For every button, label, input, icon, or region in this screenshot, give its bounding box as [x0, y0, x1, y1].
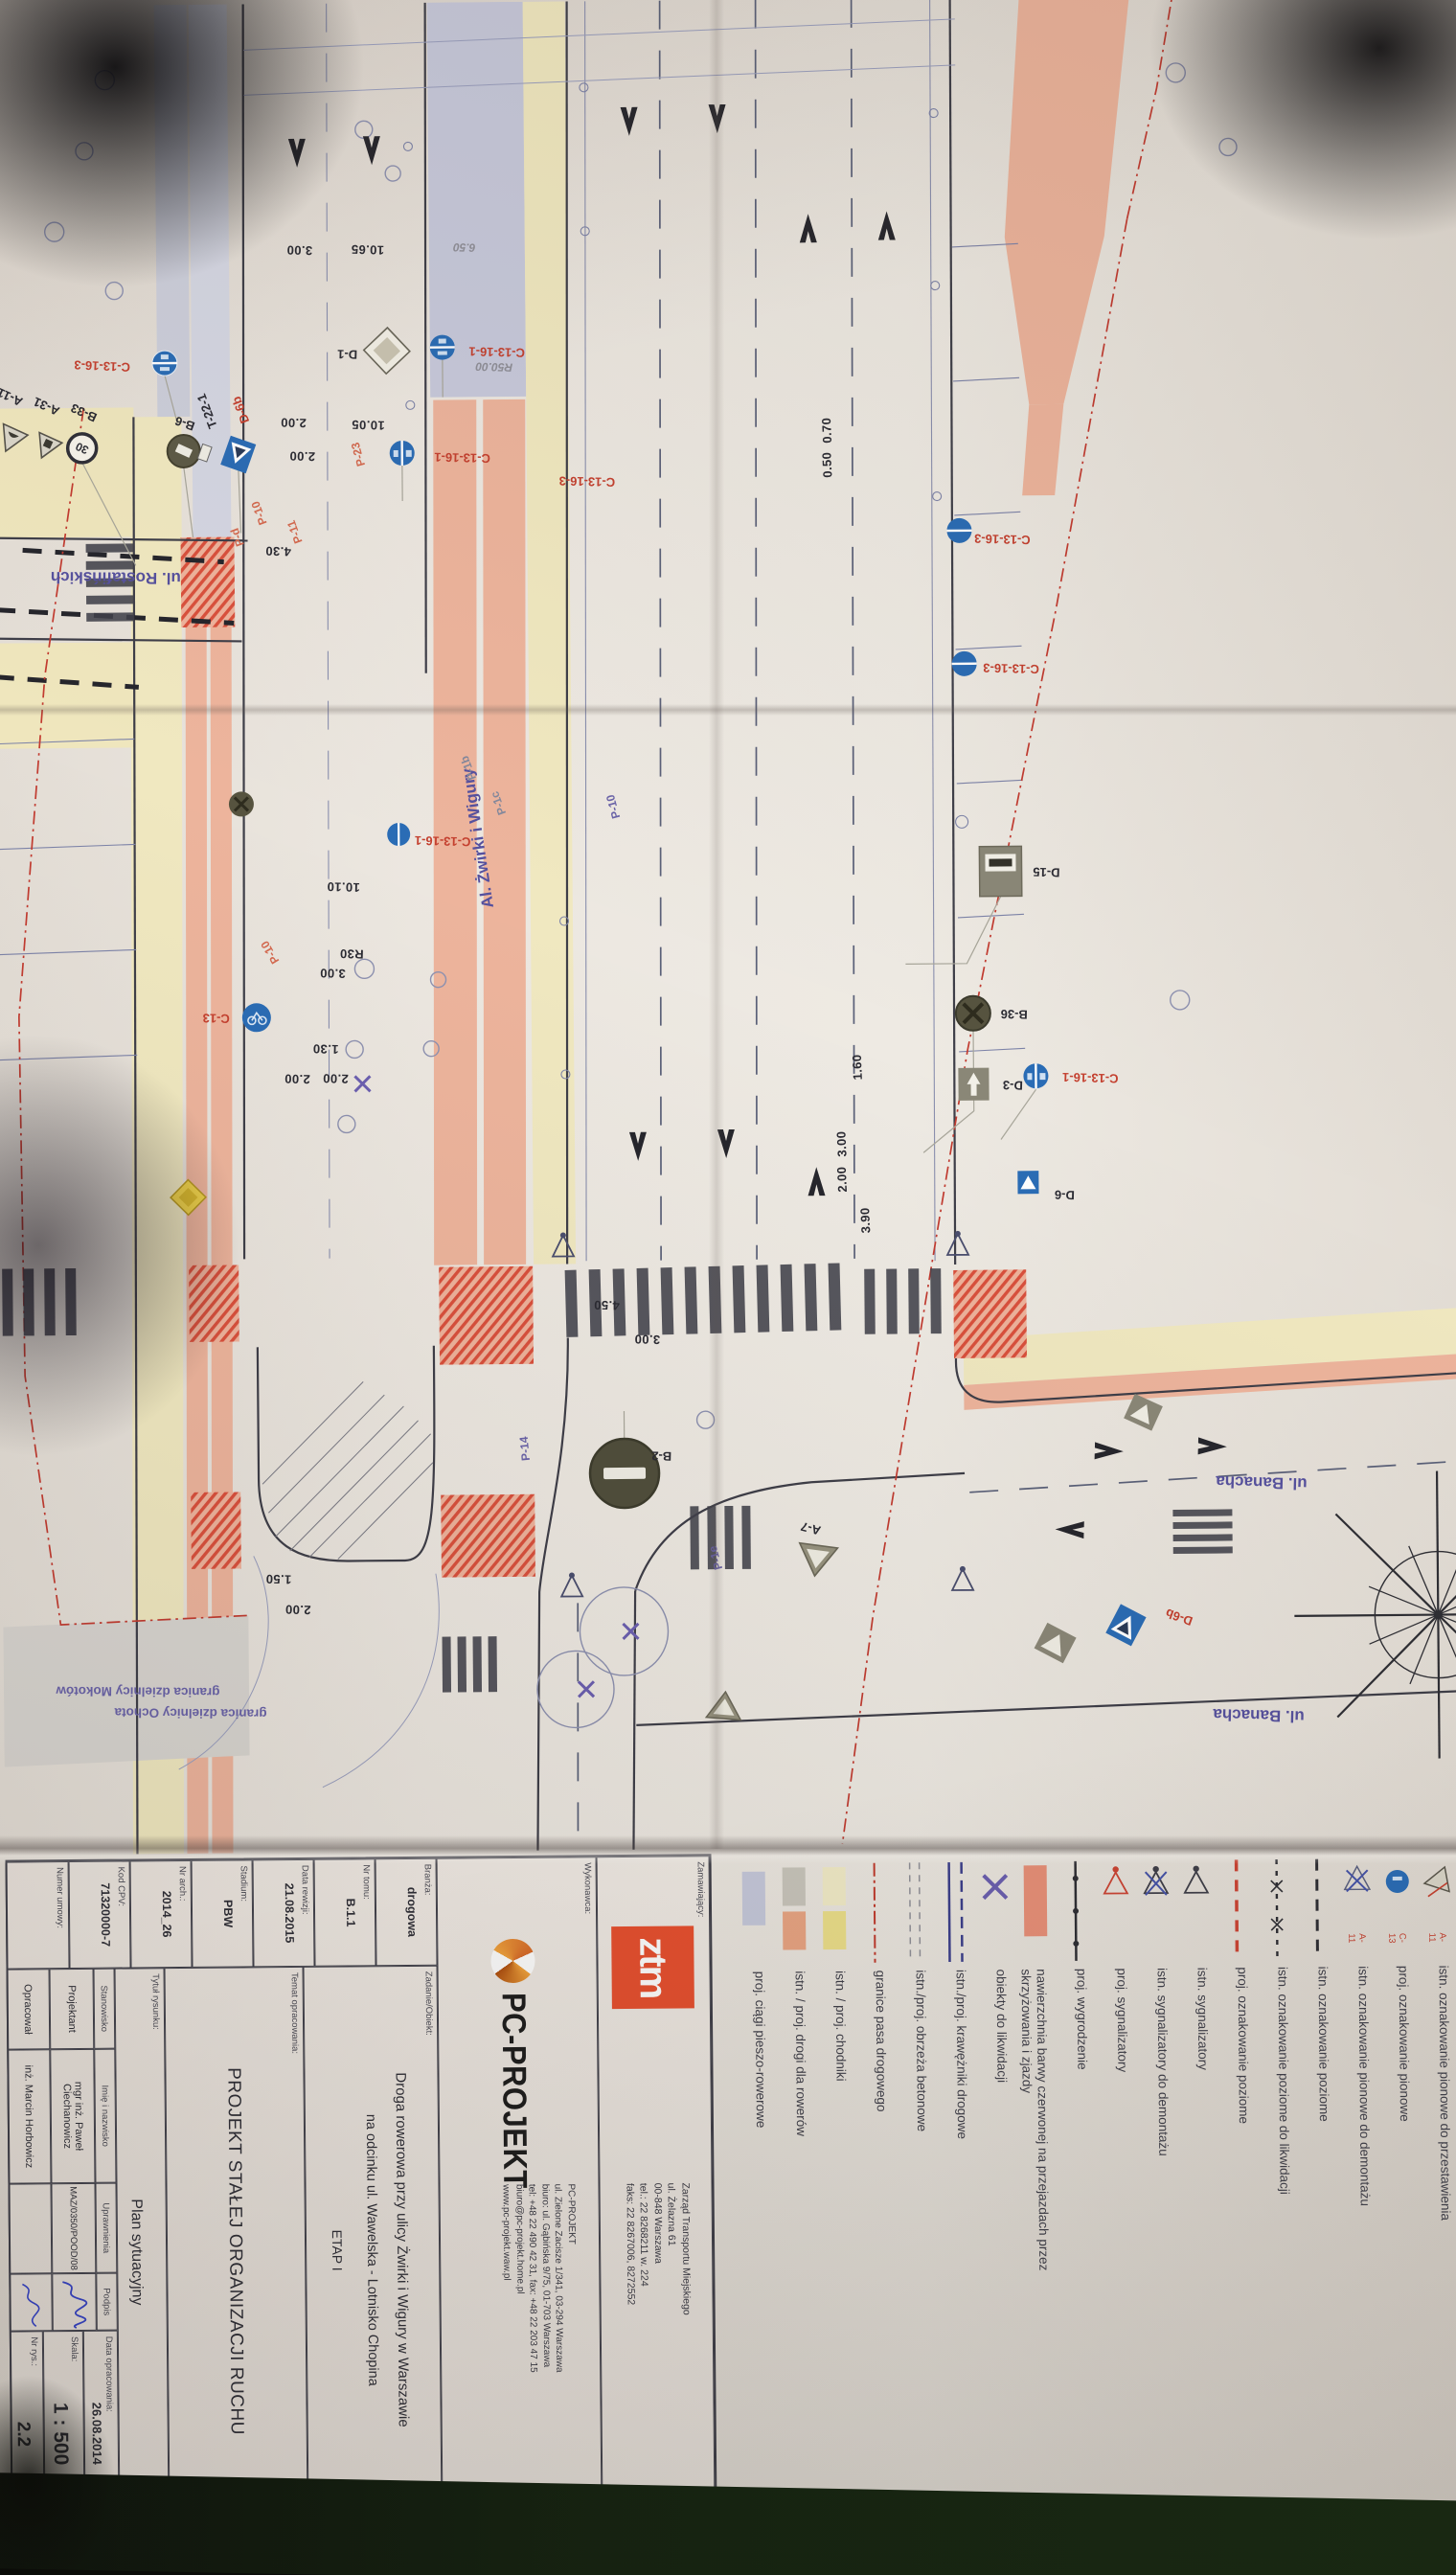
legend-item: istn. sygnalizatory do demontażu	[1137, 1855, 1182, 2520]
scale-cell: Skala: 1 : 500	[43, 2331, 85, 2537]
task-line: ETAP I	[328, 1968, 348, 2534]
photo-of-traffic-plan: 30	[0, 0, 1456, 2575]
ztm-logo-text: ztm	[631, 1937, 675, 1997]
legend-item-label: proj. sygnalizatory	[1114, 1968, 1132, 2301]
legend-tag: A-11	[1426, 1932, 1447, 1943]
sign-b36-icon	[956, 996, 990, 1031]
sign-code: B-36	[1000, 1007, 1028, 1022]
address-line: ul. Żelazna 61	[665, 2183, 680, 2315]
legend-item-label: proj. ciągi pieszo-rowerowe	[752, 1971, 770, 2305]
legend-item-label: istn. sygnalizatory do demontażu	[1154, 1968, 1172, 2301]
legend-item: istn. oznakowanie poziome do likwidacji	[1258, 1854, 1303, 2519]
meta-label: Stadium:	[239, 1865, 249, 1902]
sign-code: A-7	[799, 1519, 822, 1538]
marking-code: P-10	[603, 793, 623, 820]
date-cell: Data opracowania: 26.08.2014	[83, 2331, 120, 2537]
sign-code: C-13-16-3	[983, 661, 1039, 677]
meta-label: Nr tomu:	[361, 1864, 372, 1900]
client-address: Zarząd Transportu Miejskiego ul. Żelazna…	[623, 2182, 694, 2315]
person-signature	[9, 2273, 53, 2331]
task-label: Zadanie/Obiekt:	[423, 1971, 435, 2036]
meta-cell-branza: Branża:drogowa	[375, 1858, 438, 1967]
marking-code: P-10	[248, 499, 269, 527]
address-line: 00-848 Warszawa	[650, 2183, 666, 2315]
legend-item: granice pasa drogowego	[855, 1857, 900, 2523]
sign-code: D-15	[1033, 865, 1060, 880]
dimension: 2.00	[834, 1166, 850, 1193]
surface-fills	[0, 0, 1456, 1856]
legend-sign-remove-icon	[1340, 1853, 1376, 1964]
legend-concrete-edging-icon	[898, 1857, 933, 1968]
meta-label: Nr arch.:	[177, 1866, 188, 1902]
legend-existing-signal-icon	[1179, 1855, 1215, 1966]
address-line: biuro: ul. Gąbińska 9/75, 01-703 Warszaw…	[538, 2184, 553, 2373]
legend-kerbs-icon	[938, 1857, 973, 1968]
subject-label: Temat opracowania:	[289, 1972, 301, 2054]
street-label: ul. Banacha	[1215, 1472, 1307, 1493]
legend-fence-icon	[1058, 1856, 1094, 1967]
address-line: tel: +48 22 490 42 31, fax: +48 22 203 4…	[526, 2184, 540, 2373]
address-line: biuro@pc-projekt.home.pl	[512, 2184, 527, 2373]
date-label: Data opracowania:	[103, 2336, 115, 2412]
legend-item-label: nawierzchnia barwy czerwonej na przejazd…	[1019, 1969, 1052, 2302]
sign-code: C-13-16-1	[434, 450, 490, 467]
legend-item-label: istn. oznakowanie pionowe do demontażu	[1355, 1966, 1374, 2299]
legend-existing-markings-icon	[1300, 1854, 1335, 1965]
person-role: Opracował	[7, 1969, 51, 2049]
legend-demolition-icon	[978, 1856, 1013, 1967]
sign-b6-icon	[168, 435, 200, 467]
sign-code: D-6b	[229, 395, 252, 425]
legend-new-signal-icon	[1099, 1855, 1134, 1966]
sign-code: C-13-16-3	[558, 474, 615, 490]
signature-ink	[12, 2278, 45, 2330]
meta-value: 2014_26	[160, 1861, 174, 1967]
contractor-cell: Wykonawca: PC-PROJEKT PC-PROJEKT ul. Zie…	[437, 1857, 603, 2533]
legend-item-label: istn./proj. krawężniki drogowe	[953, 1970, 971, 2303]
legend-bike-paths-icon	[777, 1857, 812, 1969]
legend-item-label: istn. oznakowanie poziome do likwidacji	[1275, 1967, 1293, 2300]
paper-sheet: 30	[0, 0, 1456, 2528]
sign-code: D-3	[1003, 1078, 1023, 1093]
sign-d15-icon	[979, 846, 1021, 896]
legend-item-label: proj. oznakowanie pionowe	[1396, 1966, 1414, 2299]
legend-item: istn./proj. krawężniki drogowe	[936, 1857, 981, 2522]
person-license	[8, 2183, 52, 2273]
dimension: 6.50	[453, 240, 476, 255]
site-plan-map: 30	[0, 0, 1456, 1856]
dimension: R50.00	[475, 360, 512, 375]
contractor-label: Wykonawca:	[582, 1862, 593, 1914]
drawing-title-cell: Tytuł rysunku: Plan sytuacyjny	[115, 1968, 170, 2536]
legend-item: istn. sygnalizatory	[1177, 1855, 1222, 2520]
meta-cell-tom: Nr tomu:B.1.1	[314, 1858, 376, 1967]
task-line: Droga rowerowa przy ulicy Żwirki i Wigur…	[392, 1967, 413, 2533]
sign-code: B-2	[651, 1448, 671, 1464]
meta-cell-cpv: Kod CPV:71320000-7	[69, 1860, 131, 1969]
address-line: PC-PROJEKT	[564, 2183, 579, 2372]
legend-item-label: istn. oznakowanie pionowe do przestawien…	[1436, 1965, 1454, 2298]
sign-code: D-6	[1055, 1188, 1075, 1203]
sheet-number-value: 2.2	[11, 2332, 34, 2536]
marking-code: P-11	[284, 518, 306, 545]
marking-code: P-10	[258, 938, 282, 966]
person-license: MAZ/0350/POOD/08	[51, 2183, 96, 2273]
legend-row-boundary-icon	[857, 1857, 893, 1969]
dimension: 3.90	[857, 1207, 873, 1234]
drawing-title-label: Tytuł rysunku:	[150, 1973, 162, 2030]
address-line: Zarząd Transportu Miejskiego	[678, 2182, 694, 2314]
legend-item-label: istn. sygnalizatory	[1194, 1968, 1213, 2301]
legend-item-label: istn. / proj. chodniki	[832, 1971, 851, 2304]
traffic-island-hatch	[262, 1381, 434, 1561]
legend-item: proj. wygrodzenie	[1057, 1856, 1102, 2521]
legend: A-11 istn. oznakowanie pionowe do przest…	[726, 1852, 1456, 2529]
address-line: tel.: 22 8268211 w. 224	[637, 2183, 652, 2315]
street-label: ul. Rostafińskich	[51, 568, 181, 587]
legend-sign-new-icon	[1380, 1853, 1416, 1964]
sign-c13-16-3-icon	[952, 651, 977, 676]
legend-item: proj. sygnalizatory	[1097, 1855, 1142, 2520]
meta-label: Kod CPV:	[116, 1867, 126, 1906]
sign-d3-icon	[958, 1068, 989, 1101]
legend-item: A-11 istn. oznakowanie pionowe do przest…	[1419, 1852, 1456, 2518]
dimension: 3.00	[286, 243, 312, 259]
people-header-license: Uprawnienia	[95, 2183, 117, 2273]
meta-cell-umowa: Numer umowy:	[6, 1861, 70, 1970]
legend-item-label: istn. / proj. drogi dla rowerów	[792, 1971, 810, 2304]
meta-value: B.1.1	[344, 1859, 358, 1965]
sign-a7-icon	[796, 1543, 838, 1579]
legend-signal-remove-icon	[1139, 1855, 1174, 1966]
sign-code: D-1	[337, 347, 357, 362]
sign-code: A-11	[0, 385, 25, 409]
district-boundary-label: granica dzielnicy Mokotów	[56, 1684, 220, 1699]
sign-d6-gray-icon	[1035, 1623, 1077, 1663]
meta-value	[51, 1862, 52, 1968]
street-label: ul. Banacha	[1213, 1705, 1305, 1726]
meta-label: Branża:	[422, 1864, 433, 1896]
meta-value: 21.08.2015	[283, 1860, 297, 1966]
dimension: 1.50	[265, 1572, 291, 1587]
signal-head-icon	[947, 1231, 968, 1255]
dimension: 2.00	[284, 1603, 310, 1618]
legend-tag: C-13	[1386, 1933, 1407, 1944]
dimension: 10.65	[351, 242, 384, 258]
sheet-number-cell: Nr rys.: 2.2	[10, 2331, 45, 2537]
dimension: 0.70	[819, 417, 834, 444]
meta-cell-arch: Nr arch.:2014_26	[130, 1860, 193, 1969]
signal-head-icon	[561, 1572, 582, 1596]
signature-ink	[55, 2278, 87, 2330]
pc-projekt-swirl-icon	[490, 1939, 535, 1983]
dimension: 1.30	[312, 1041, 338, 1057]
legend-item: nawierzchnia barwy czerwonej na przejazd…	[1016, 1856, 1061, 2521]
client-cell: Zamawiający: ztm Zarząd Transportu Miejs…	[597, 1856, 716, 2532]
legend-item: proj. ciągi pieszo-rowerowe	[735, 1858, 780, 2524]
sign-a7-icon	[706, 1691, 742, 1720]
people-header-signature: Podpis	[96, 2273, 118, 2331]
subject-value: PROJEKT STAŁEJ ORGANIZACJI RUCHU	[222, 1968, 248, 2534]
sign-d6-icon	[1017, 1171, 1038, 1194]
dimension: 3.00	[833, 1130, 849, 1157]
scale-value: 1 : 500	[48, 2332, 73, 2536]
subject-cell: Temat opracowania: PROJEKT STAŁEJ ORGANI…	[165, 1967, 308, 2536]
legend-new-markings-icon	[1219, 1854, 1255, 1965]
dimension: 2.00	[323, 1071, 349, 1086]
dimension: 10.10	[327, 879, 360, 895]
marking-code: P-23	[349, 441, 368, 467]
legend-item-label: istn. oznakowanie poziome	[1315, 1967, 1333, 2300]
title-block: Zamawiający: ztm Zarząd Transportu Miejs…	[6, 1854, 717, 2535]
legend-item: istn. / proj. drogi dla rowerów	[775, 1857, 820, 2523]
address-line: faks: 22 8267006, 8272552	[623, 2183, 638, 2315]
pedestrian-crossings	[0, 534, 1234, 1696]
legend-sidewalks-icon	[817, 1857, 853, 1969]
dimension: 2.00	[281, 416, 307, 431]
legend-item-label: istn./proj. obrzeża betonowe	[913, 1970, 931, 2303]
date-value: 26.08.2014	[89, 2332, 105, 2536]
compass-rose-icon	[1293, 1470, 1456, 1760]
people-header-role: Stanowisko	[94, 1969, 116, 2049]
task-line: na odcinku ul. Wawelska - Lotnisko Chopi…	[362, 1967, 382, 2533]
signal-head-icon	[952, 1566, 973, 1590]
marking-code: P-14	[517, 1436, 533, 1462]
sign-code: C-13-16-3	[974, 532, 1031, 548]
legend-item-label: granice pasa drogowego	[873, 1971, 891, 2304]
meta-value: drogowa	[405, 1859, 420, 1965]
pc-projekt-logo-text: PC-PROJEKT	[494, 1993, 535, 2189]
sign-code: D-6b	[1164, 1606, 1194, 1629]
legend-markings-remove-icon	[1260, 1854, 1295, 1965]
dimension: 4.30	[265, 544, 291, 559]
ztm-logo: ztm	[611, 1926, 694, 2009]
legend-item: istn./proj. obrzeża betonowe	[896, 1857, 941, 2522]
dimension: 3.00	[320, 966, 346, 981]
sign-c13-16-1-icon	[387, 823, 410, 846]
sign-code: C-13-16-1	[1062, 1070, 1119, 1086]
pc-projekt-logo: PC-PROJEKT	[490, 1939, 536, 2189]
address-line: www.pc-projekt.waw.pl	[500, 2184, 514, 2373]
dimension: 0.50	[819, 451, 834, 478]
meta-label: Data rewizji:	[300, 1865, 310, 1915]
dimension: R30	[339, 946, 363, 962]
dimension: 2.00	[289, 449, 315, 465]
person-role: Projektant	[50, 1969, 95, 2049]
legend-shared-paths-icon	[737, 1858, 772, 1970]
contractor-address: PC-PROJEKT ul. Zielone Zacisze 1/341, 03…	[500, 2183, 580, 2373]
legend-item-label: obiekty do likwidacji	[993, 1969, 1012, 2302]
legend-item: obiekty do likwidacji	[976, 1856, 1021, 2521]
sign-code: C-13	[202, 1011, 230, 1026]
drawing-title-value: Plan sytuacyjny	[125, 1969, 148, 2535]
meta-value: PBW	[221, 1861, 236, 1967]
meta-cell-stadium: Stadium:PBW	[192, 1859, 254, 1968]
dimension: 1.60	[850, 1054, 865, 1081]
sign-code: C-13-16-3	[74, 357, 130, 375]
dimension: 3.00	[634, 1332, 660, 1347]
dimension: 2.00	[284, 1072, 310, 1087]
legend-tag: A-11	[1346, 1933, 1367, 1944]
legend-item: istn. oznakowanie poziome	[1298, 1853, 1343, 2518]
meta-cell-rewizja: Data rewizji:21.08.2015	[253, 1859, 315, 1968]
people-header-name: Imię i nazwisko	[94, 2049, 116, 2183]
meta-label: Numer umowy:	[55, 1867, 66, 1928]
district-boundary-label: granica dzielnicy Ochota	[114, 1705, 267, 1720]
client-label: Zamawiający:	[695, 1861, 707, 1917]
sign-code: C-13-16-1	[415, 833, 471, 850]
legend-item-label: proj. wygrodzenie	[1074, 1969, 1092, 2302]
sign-c13-16-3-icon	[152, 351, 177, 376]
person-name: inż. Marcin Horbowicz	[7, 2049, 51, 2183]
sign-b33-speed-limit-icon: 30	[68, 434, 97, 463]
sign-c13-16-1-icon	[390, 441, 415, 466]
sign-d6b-icon	[1105, 1604, 1146, 1646]
sign-c13-16-3-icon	[946, 518, 971, 543]
sign-c13-bike-icon	[242, 1003, 271, 1032]
person-signature	[52, 2273, 97, 2331]
sign-b36-icon	[229, 791, 254, 816]
task-cell: Zadanie/Obiekt: Droga rowerowa przy ulic…	[304, 1966, 443, 2535]
legend-item-label: proj. oznakowanie poziome	[1235, 1967, 1253, 2300]
meta-value: 71320000-7	[99, 1862, 113, 1968]
sign-d1-icon	[363, 327, 410, 374]
legend-item: istn. / proj. chodniki	[815, 1857, 860, 2523]
red-cycle-crossings	[180, 530, 1028, 1580]
sign-code: C-13-16-1	[468, 344, 525, 360]
legend-item: proj. oznakowanie poziome	[1217, 1854, 1263, 2519]
legend-red-surface-icon	[1018, 1856, 1054, 1967]
legend-item: A-11 istn. oznakowanie pionowe do demont…	[1338, 1853, 1383, 2518]
address-line: ul. Zielone Zacisze 1/341, 03-294 Warsza…	[552, 2184, 566, 2373]
dimension: 10.05	[352, 418, 385, 433]
legend-sign-relocate-icon	[1421, 1852, 1456, 1963]
sign-c13-16-1-icon	[430, 334, 455, 359]
legend-item: C-13 proj. oznakowanie pionowe	[1378, 1853, 1423, 2518]
dimension: 4.50	[594, 1298, 620, 1313]
sign-b2-no-entry-icon	[590, 1439, 660, 1509]
person-name: mgr inż. Paweł Ciechanowicz	[50, 2049, 95, 2183]
sign-c13-16-1-icon	[1023, 1063, 1048, 1088]
